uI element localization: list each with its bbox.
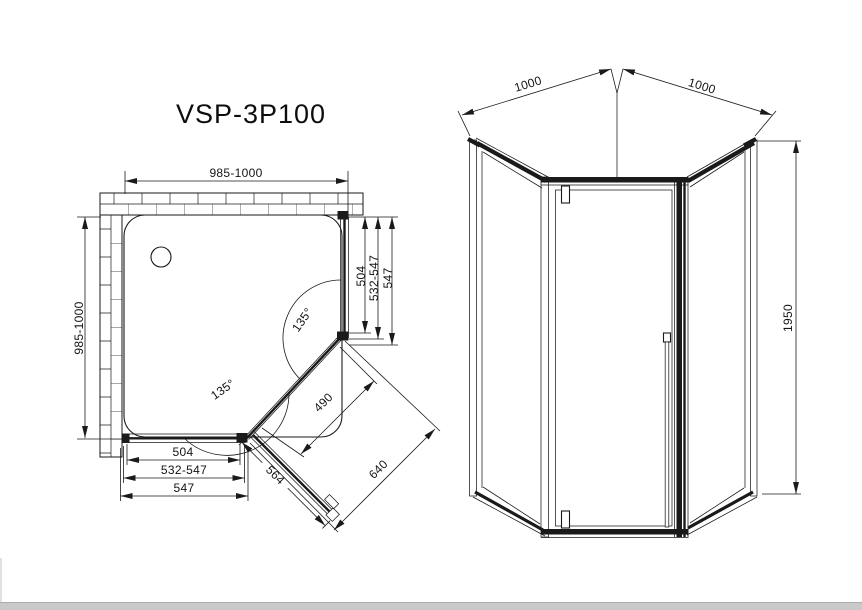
- angle-bottom: 135°: [185, 372, 289, 455]
- wall-left: [100, 215, 122, 457]
- plan-view: 564 490 640 135°: [72, 166, 440, 532]
- dim-label-plan-width: 985-1000: [209, 166, 262, 180]
- front-left-panel: [468, 138, 548, 536]
- door-glass: [556, 190, 673, 526]
- plan-door-closed: [245, 336, 342, 440]
- dim-label-1950: 1950: [781, 304, 795, 332]
- dim-label-bottom-full: 547: [174, 481, 195, 495]
- dims-plan-bottom: 504 532-547 547: [121, 444, 249, 501]
- drawing-canvas: VSP-3P100: [0, 0, 862, 610]
- door-handle: [664, 333, 671, 527]
- door-hinge-bottom: [562, 511, 570, 528]
- dim-front-height: 1950: [757, 141, 801, 494]
- plan-bottom-panel: [122, 433, 248, 443]
- dims-plan-right: 504 532-547 547: [348, 217, 398, 345]
- front-view: 1000 1000: [458, 69, 801, 538]
- dim-label-bottom-glass: 504: [173, 445, 194, 459]
- technical-drawing: VSP-3P100: [0, 0, 862, 610]
- shower-tray: [124, 215, 342, 437]
- door-hinge-top: [562, 186, 570, 203]
- door-handle-plan: [325, 495, 339, 509]
- dim-label-490: 490: [311, 390, 336, 415]
- plan-right-panel: [337, 211, 349, 341]
- drain-icon: [151, 247, 171, 267]
- dim-label-plan-depth: 985-1000: [72, 301, 86, 354]
- front-door-frame: [541, 177, 689, 538]
- front-right-panel: [687, 138, 757, 535]
- plan-door-open: 564: [237, 425, 344, 532]
- dim-label-right-full: 547: [381, 268, 395, 289]
- dim-label-right-glass: 504: [354, 266, 368, 287]
- drawing-title: VSP-3P100: [176, 99, 326, 129]
- viewport-bottom-bar: [0, 603, 862, 610]
- dim-label-bottom-range: 532-547: [161, 463, 207, 477]
- wall-top: [100, 193, 363, 215]
- dim-label-right-range: 532-547: [367, 255, 381, 301]
